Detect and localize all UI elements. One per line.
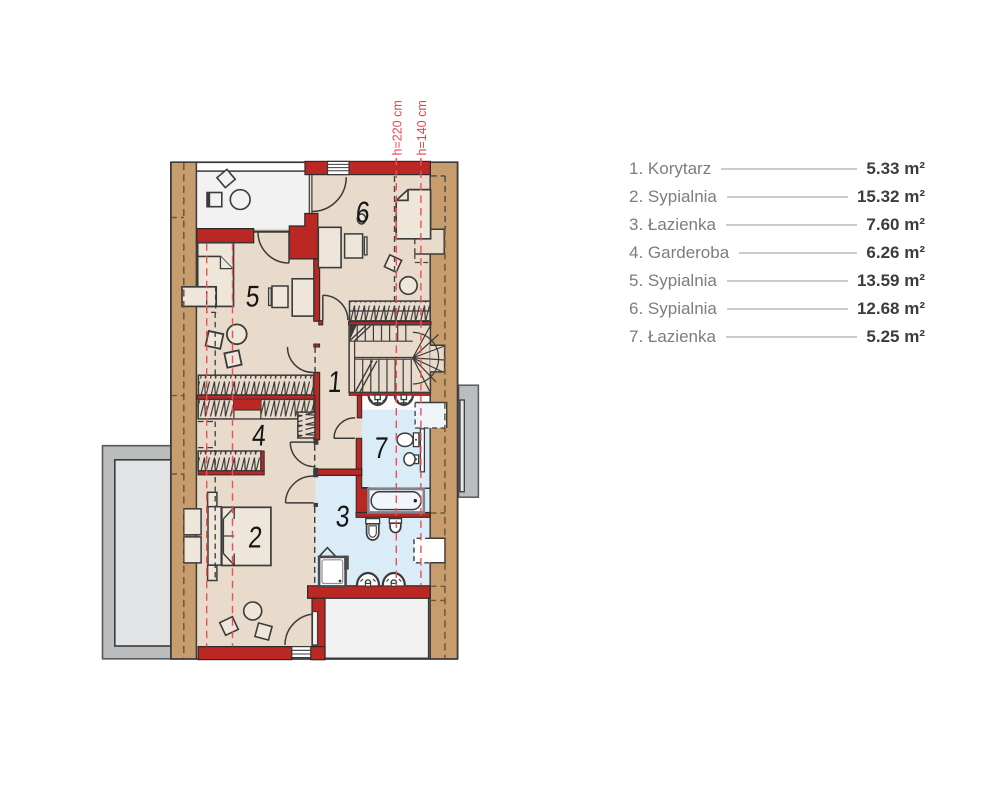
svg-text:h=140 cm: h=140 cm: [415, 100, 429, 155]
svg-text:h=220 cm: h=220 cm: [391, 100, 405, 155]
